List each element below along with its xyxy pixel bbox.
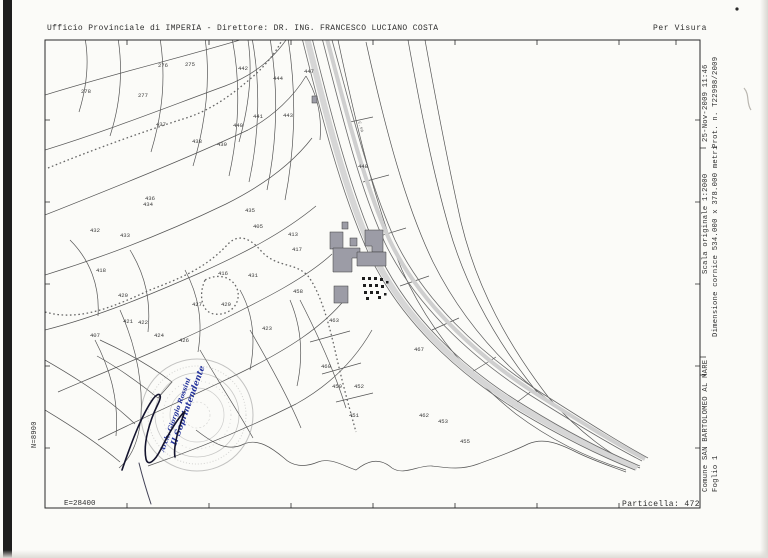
- parcel-number: 447: [304, 68, 314, 75]
- parcel-number: 462: [419, 412, 429, 419]
- parcel-number: 440: [233, 122, 244, 129]
- parcel-number: 433: [120, 232, 130, 239]
- parcel-number: 459: [332, 383, 342, 390]
- parcel-number: 423: [262, 325, 272, 332]
- parcel-number: 407: [90, 332, 100, 339]
- parcel-number: 442: [238, 65, 248, 72]
- parcel-number: 443: [283, 112, 293, 119]
- parcel-number: 426: [179, 337, 189, 344]
- parcel-number: 439: [217, 141, 227, 148]
- parcel-number: 418: [96, 267, 106, 274]
- cadastral-map: C.sa 27827: [0, 0, 768, 558]
- scanned-map-sheet: Ufficio Provinciale di IMPERIA - Diretto…: [0, 0, 768, 558]
- parcel-number: 438: [192, 138, 202, 145]
- parcel-number: 451: [349, 412, 360, 419]
- parcel-number: 278: [81, 88, 91, 95]
- parcel-number: 424: [154, 332, 165, 339]
- parcel-number: 421: [123, 318, 134, 325]
- parcel-number: 413: [288, 231, 298, 238]
- parcel-number: 458: [293, 288, 303, 295]
- parcel-number: 417: [292, 246, 302, 253]
- parcel-number: 434: [143, 201, 154, 208]
- parcel-number: 405: [253, 223, 263, 230]
- parcel-number: 277: [138, 92, 148, 99]
- parcel-number: 441: [253, 113, 264, 120]
- parcel-number: 420: [118, 292, 129, 299]
- parcel-number: 460: [321, 363, 332, 370]
- parcel-number: 455: [460, 438, 470, 445]
- parcel-number: 422: [138, 319, 148, 326]
- parcel-number: 427: [192, 301, 202, 308]
- faint-pen-curl: [744, 88, 751, 110]
- parcel-number: 448: [358, 163, 368, 170]
- parcel-number: 452: [354, 383, 364, 390]
- parcel-number: 437: [156, 121, 166, 128]
- pen-dot: [735, 7, 738, 10]
- parcel-number: 463: [329, 317, 339, 324]
- parcel-number: 467: [414, 346, 424, 353]
- parcel-number: 275: [185, 61, 195, 68]
- parcel-number: 431: [248, 272, 259, 279]
- parcel-number: 432: [90, 227, 100, 234]
- scan-marks: [735, 7, 751, 110]
- parcel-number: 453: [438, 418, 448, 425]
- parcel-number: 444: [273, 75, 284, 82]
- parcel-number: 429: [221, 301, 231, 308]
- parcel-number: 276: [158, 62, 168, 69]
- parcel-number: 416: [218, 270, 228, 277]
- parcel-number: 435: [245, 207, 255, 214]
